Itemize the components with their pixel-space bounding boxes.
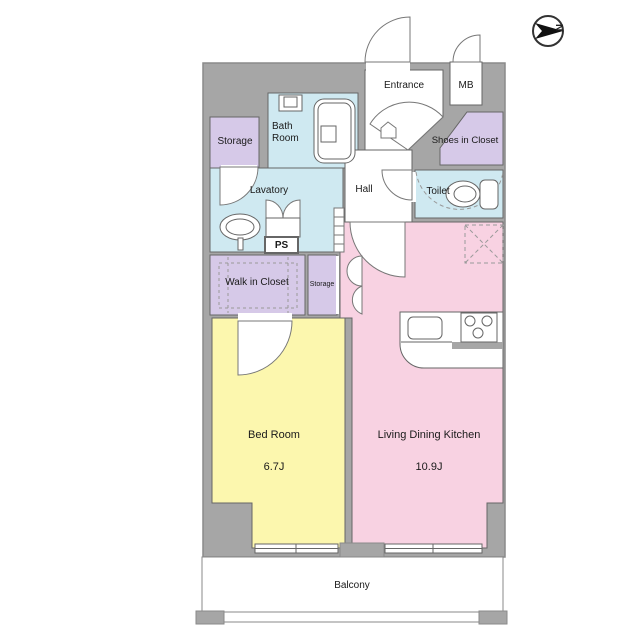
ldk-name: Living Dining Kitchen [354, 427, 504, 443]
balcony-pillar-right [479, 611, 507, 624]
bedroom-window [255, 544, 338, 553]
kitchen-sink-icon [408, 317, 442, 339]
bed-room-area: 6.7J [222, 459, 326, 475]
entrance-label: Entrance [365, 80, 443, 92]
toilet-label: Toilet [413, 186, 463, 198]
bedroom-doorway-gap [238, 313, 292, 321]
ldk-window [385, 544, 482, 553]
kitchen-counter [400, 312, 503, 368]
compass-north-label: N [553, 24, 564, 31]
bath-room-label: Bath Room [272, 121, 306, 145]
storage-lower-label: Storage [305, 281, 339, 289]
bath-counter-icon [279, 95, 302, 111]
bath-shelf-icon [321, 126, 336, 142]
shoes-in-closet-label: Shoes in Closet [429, 135, 501, 147]
balcony-pillar-left [196, 611, 224, 624]
bed-room-label: Bed Room 6.7J [222, 411, 326, 491]
walk-in-closet-label: Walk in Closet [225, 277, 289, 289]
lavatory-label: Lavatory [240, 185, 298, 197]
storage-upper-label: Storage [212, 136, 258, 148]
hall-label: Hall [342, 184, 386, 196]
mb-label: MB [450, 80, 482, 92]
pipe-space-label: PS [265, 240, 298, 252]
bed-room-name: Bed Room [222, 427, 326, 443]
floor-plan: Entrance MB Shoes in Closet Storage Bath… [0, 0, 640, 640]
ldk-label: Living Dining Kitchen 10.9J [354, 411, 504, 491]
mb-door-arc [453, 35, 480, 62]
lavatory-closet [266, 218, 300, 237]
lavatory-sliding-door [334, 208, 344, 252]
window-pillar [340, 543, 384, 557]
floor-plan-drawing [0, 0, 640, 640]
ldk-area: 10.9J [354, 459, 504, 475]
kitchen-wall-stub [452, 342, 503, 349]
room-living-dining-kitchen [340, 222, 503, 548]
balcony-rail [202, 612, 503, 622]
entrance-door-arc [365, 17, 410, 62]
stove-icon [461, 313, 497, 342]
balcony-label: Balcony [312, 580, 392, 592]
